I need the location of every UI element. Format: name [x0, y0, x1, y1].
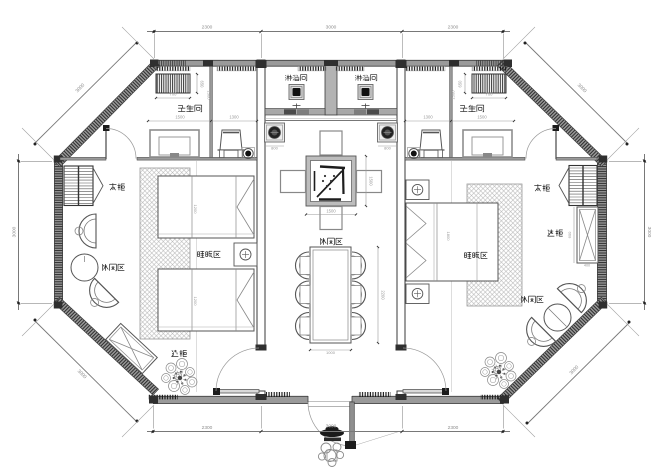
svg-text:3000: 3000 — [12, 226, 18, 237]
svg-text:2300: 2300 — [202, 25, 213, 31]
svg-text:1500: 1500 — [477, 115, 487, 120]
svg-text:700: 700 — [486, 92, 494, 97]
svg-text:700: 700 — [170, 92, 178, 97]
svg-text:650: 650 — [200, 81, 205, 89]
svg-text:1800: 1800 — [446, 232, 451, 242]
svg-text:1200: 1200 — [193, 205, 198, 215]
svg-text:3000: 3000 — [76, 368, 88, 380]
svg-text:1500: 1500 — [207, 91, 212, 101]
svg-text:1300: 1300 — [229, 115, 239, 120]
svg-text:400: 400 — [584, 264, 590, 268]
svg-text:1300: 1300 — [423, 115, 433, 120]
svg-text:650: 650 — [458, 80, 463, 88]
svg-text:1500: 1500 — [326, 209, 336, 214]
svg-text:1500: 1500 — [451, 90, 456, 100]
svg-text:3000: 3000 — [326, 25, 337, 31]
svg-text:1000: 1000 — [326, 350, 336, 355]
svg-text:2300: 2300 — [202, 425, 213, 431]
svg-text:2300: 2300 — [448, 25, 459, 31]
svg-text:3000: 3000 — [646, 227, 651, 238]
svg-text:2300: 2300 — [448, 425, 459, 431]
svg-text:600: 600 — [567, 231, 572, 238]
svg-text:3000: 3000 — [576, 82, 588, 94]
svg-text:2200: 2200 — [381, 290, 386, 300]
svg-text:800: 800 — [271, 146, 278, 151]
svg-text:3000: 3000 — [568, 364, 580, 376]
svg-text:3000: 3000 — [326, 424, 337, 430]
svg-text:1500: 1500 — [369, 176, 374, 186]
svg-text:800: 800 — [384, 146, 391, 151]
svg-text:1200: 1200 — [193, 297, 198, 307]
svg-text:3000: 3000 — [74, 82, 86, 94]
svg-text:1500: 1500 — [175, 115, 185, 120]
